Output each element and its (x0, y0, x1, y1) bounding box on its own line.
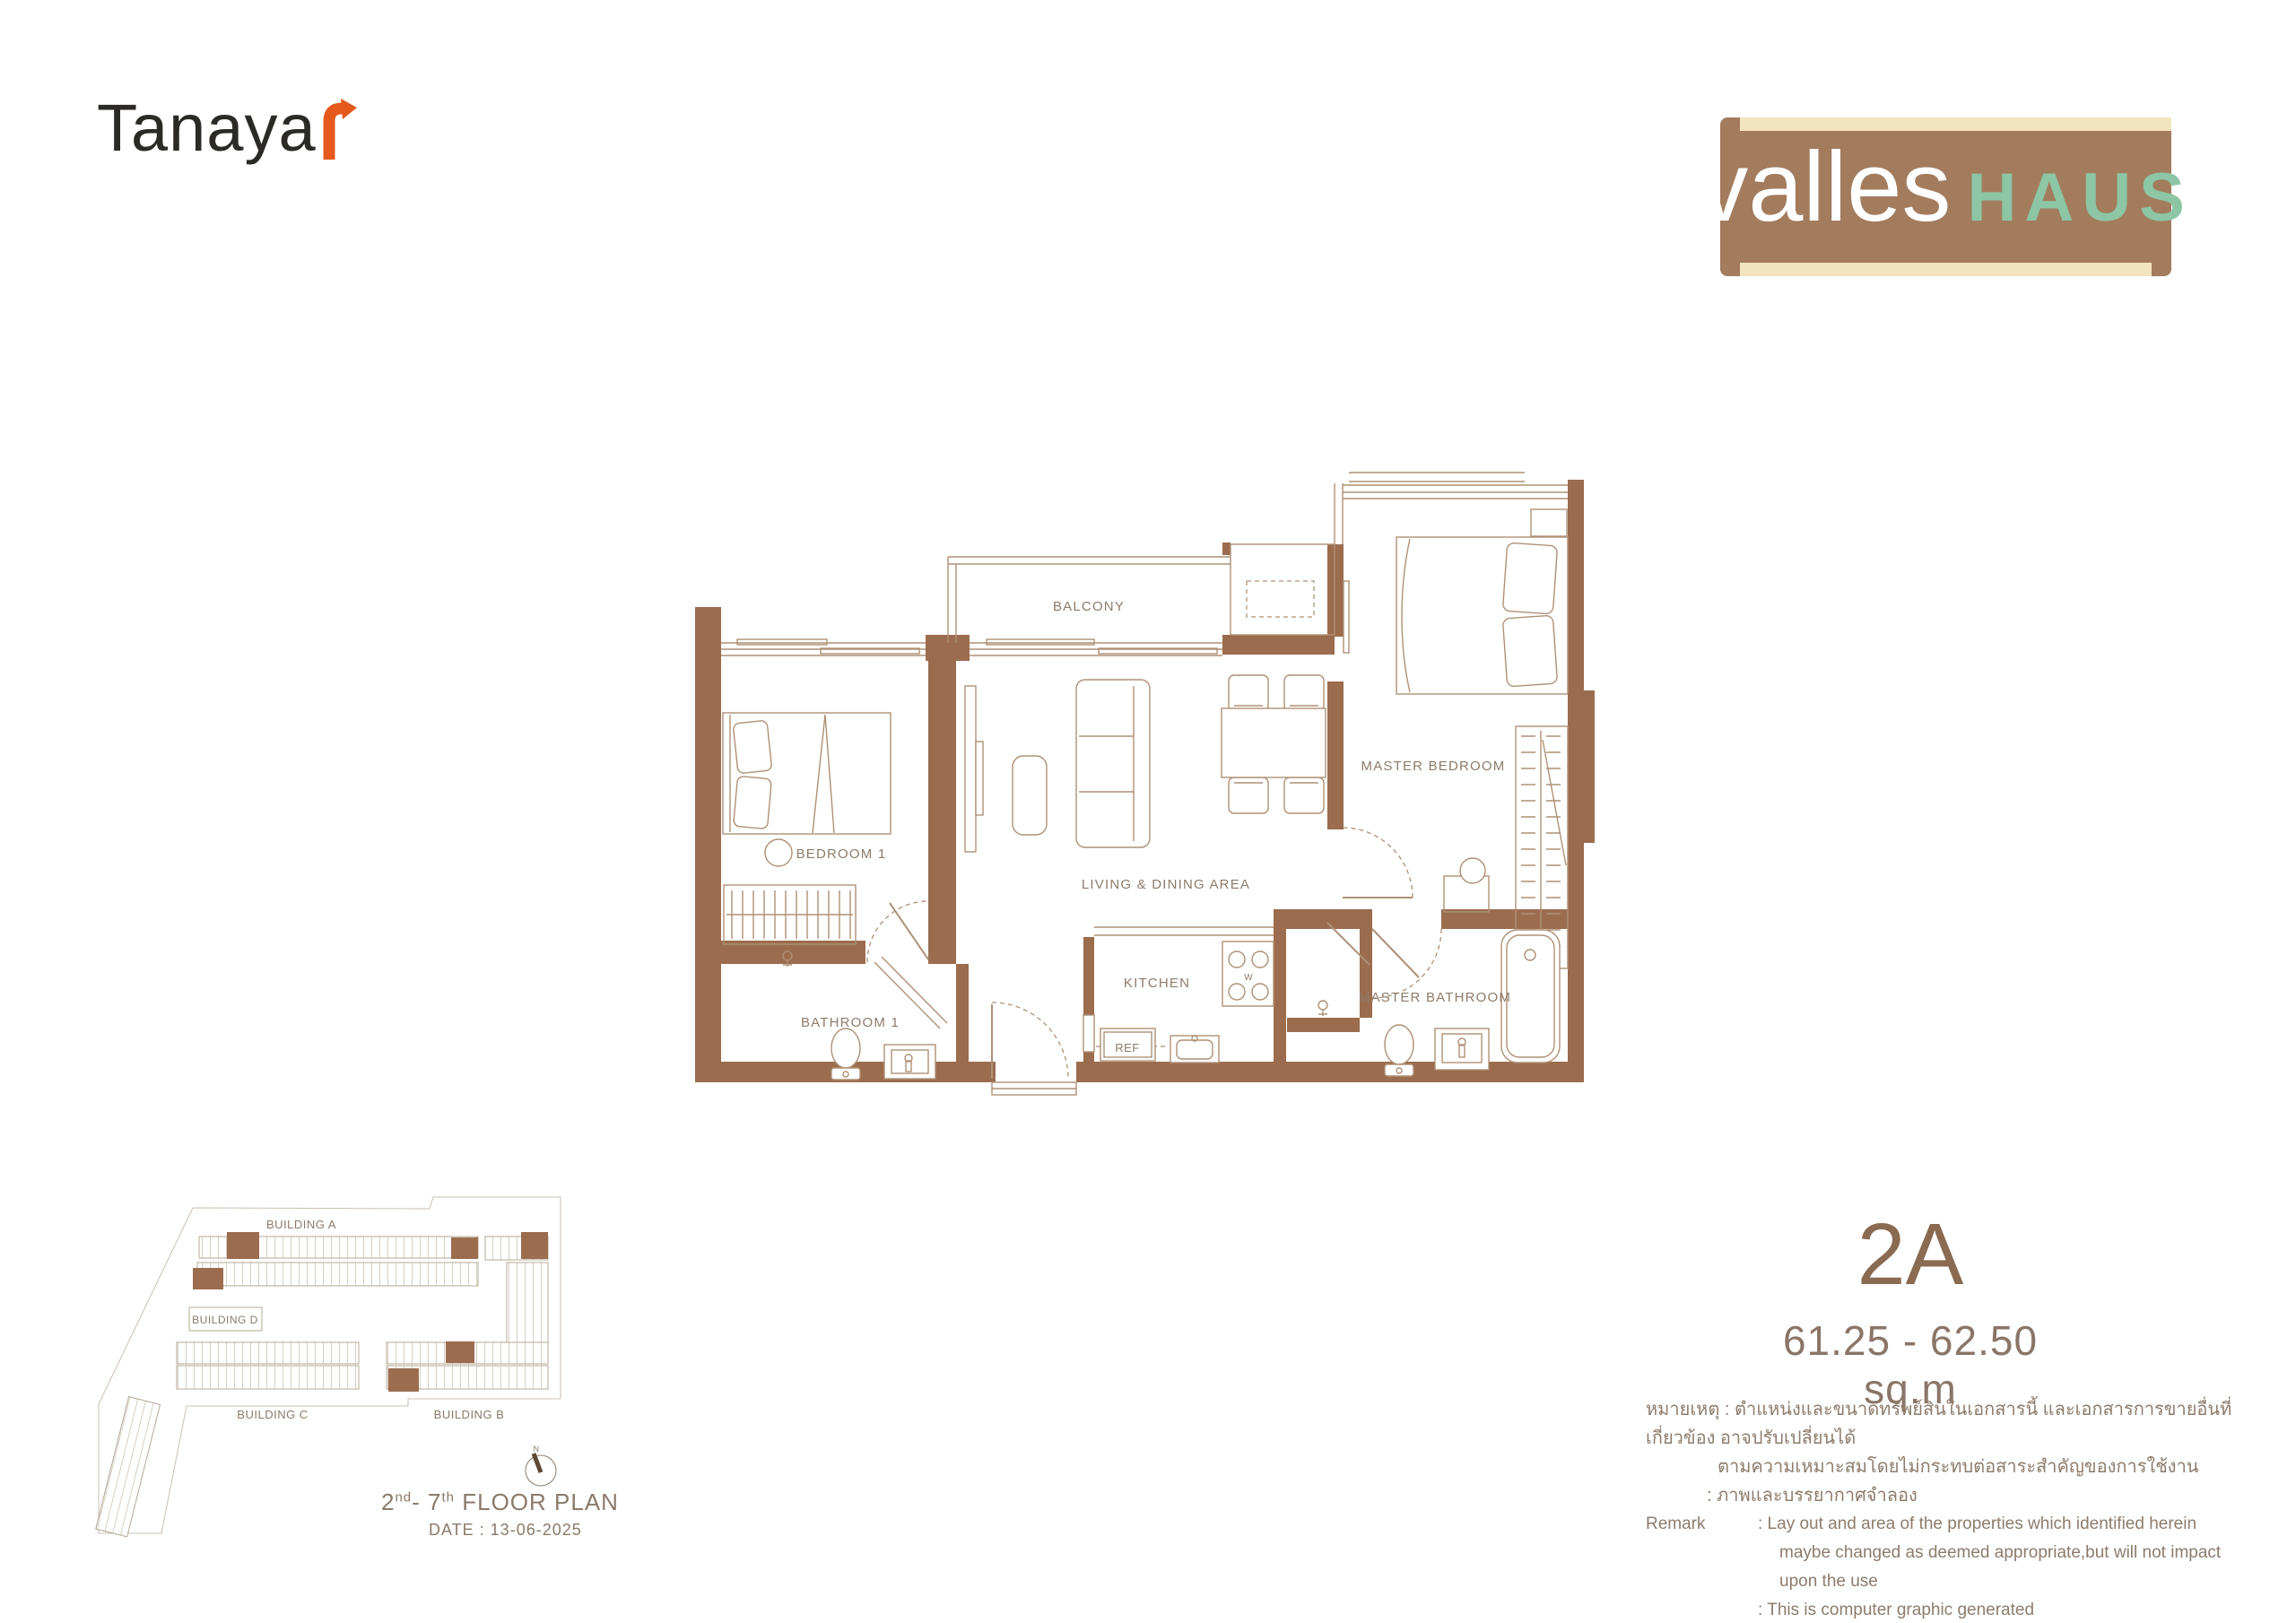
fp-title-p2: - 7 (412, 1488, 441, 1515)
ac-unit (1247, 581, 1314, 617)
badge-bottom-bar (1740, 263, 2152, 276)
project-logo-badge: valles HAUS (1720, 117, 2171, 276)
bathroom1-label: BATHROOM 1 (801, 1015, 900, 1030)
toilet-1 (831, 1028, 860, 1080)
compass-n-label: N (534, 1445, 540, 1454)
stool (1460, 858, 1485, 883)
remark-label: Remark (1646, 1510, 1706, 1539)
compass: N (526, 1445, 556, 1486)
project-word-haus: HAUS (1967, 142, 2192, 254)
remark-block: หมายเหตุ : ตำแหน่งและขนาดทรัพย์สินในเอกส… (1646, 1395, 2238, 1623)
side-table (765, 839, 792, 866)
balcony-label: BALCONY (1053, 599, 1125, 614)
basin-1 (884, 1045, 935, 1079)
valve-2 (1318, 1001, 1327, 1016)
master-bedroom-door-arc (1343, 828, 1413, 898)
fp-title-p1: 2 (381, 1488, 395, 1515)
unit-type: 2A (1758, 1209, 2063, 1300)
fp-title-p3: FLOOR PLAN (455, 1488, 619, 1515)
remark-row: หมายเหตุ : ตำแหน่งและขนาดทรัพย์สินในเอกส… (1646, 1395, 2238, 1453)
w-label: W (1244, 973, 1253, 983)
night-table (1531, 509, 1567, 536)
remark-text: : This is computer graphic generated (1646, 1596, 2238, 1623)
building-d-label: BUILDING D (192, 1314, 258, 1326)
sofa (1076, 680, 1150, 847)
building-c-label: BUILDING C (237, 1408, 308, 1421)
tv-console (965, 686, 976, 852)
remark-text: ตามความเหมาะสมโดยไม่กระทบต่อสาระสำคัญของ… (1646, 1453, 2238, 1481)
master-bathroom-label: MASTER BATHROOM (1359, 990, 1511, 1005)
ref-label: REF (1115, 1041, 1140, 1055)
building-a-label: BUILDING A (266, 1218, 336, 1231)
fp-title-sup2: th (442, 1489, 456, 1505)
turn-right-arrow-icon (321, 97, 357, 160)
bedroom1-label: BEDROOM 1 (796, 846, 887, 862)
entrance-door-arc (992, 1002, 1068, 1079)
remark-row: ตามความเหมาะสมโดยไม่กระทบต่อสาระสำคัญของ… (1646, 1453, 2238, 1481)
kitchen-sink (1170, 1036, 1219, 1063)
remark-text: : Lay out and area of the properties whi… (1646, 1510, 2238, 1539)
project-wordmark: valles HAUS (1720, 131, 2171, 263)
developer-logo: Tanaya (97, 95, 357, 161)
tv (976, 742, 983, 815)
master-basin (1435, 1028, 1489, 1070)
fp-title-sup1: nd (395, 1489, 412, 1505)
remark-row: Remark : Lay out and area of the propert… (1646, 1510, 2238, 1539)
floor-plan-title: 2nd- 7th FLOOR PLAN (381, 1488, 619, 1516)
floor-plan-date: DATE : 13-06-2025 (429, 1521, 582, 1540)
project-word-valles: valles (1699, 131, 1951, 243)
master-toilet (1385, 1025, 1413, 1076)
dining-set (1222, 675, 1326, 813)
brochure-page: Tanaya valles HAUS (0, 0, 2296, 1623)
living-label: LIVING & DINING AREA (1082, 877, 1250, 892)
master-bedroom-label: MASTER BEDROOM (1361, 759, 1506, 774)
bedroom1-door-arc (867, 901, 928, 962)
remark-text: maybe changed as deemed appropriate,but … (1646, 1539, 2238, 1596)
remark-text: : ภาพและบรรยากาศจำลอง (1646, 1481, 2238, 1510)
unit-info: 2A 61.25 - 62.50 sq.m (1758, 1209, 2063, 1413)
compass-needle (534, 1454, 541, 1472)
wardrobe-1 (724, 885, 856, 944)
developer-wordmark: Tanaya (97, 95, 317, 161)
badge-top-bar (1740, 117, 2171, 131)
bed-1 (723, 713, 891, 834)
master-bed (1396, 537, 1568, 694)
remark-row: : This is computer graphic generated (1646, 1596, 2238, 1623)
unit-floor-plan: BALCONY BEDROOM 1 LIVING & DINING AREA M… (691, 471, 1619, 1103)
coffee-table (1013, 756, 1047, 835)
kitchen-label: KITCHEN (1124, 976, 1190, 991)
building-b-label: BUILDING B (434, 1408, 505, 1421)
remark-text: หมายเหตุ : ตำแหน่งและขนาดทรัพย์สินในเอกส… (1646, 1395, 2238, 1453)
remark-row: maybe changed as deemed appropriate,but … (1646, 1539, 2238, 1596)
remark-row: : ภาพและบรรยากาศจำลอง (1646, 1481, 2238, 1510)
